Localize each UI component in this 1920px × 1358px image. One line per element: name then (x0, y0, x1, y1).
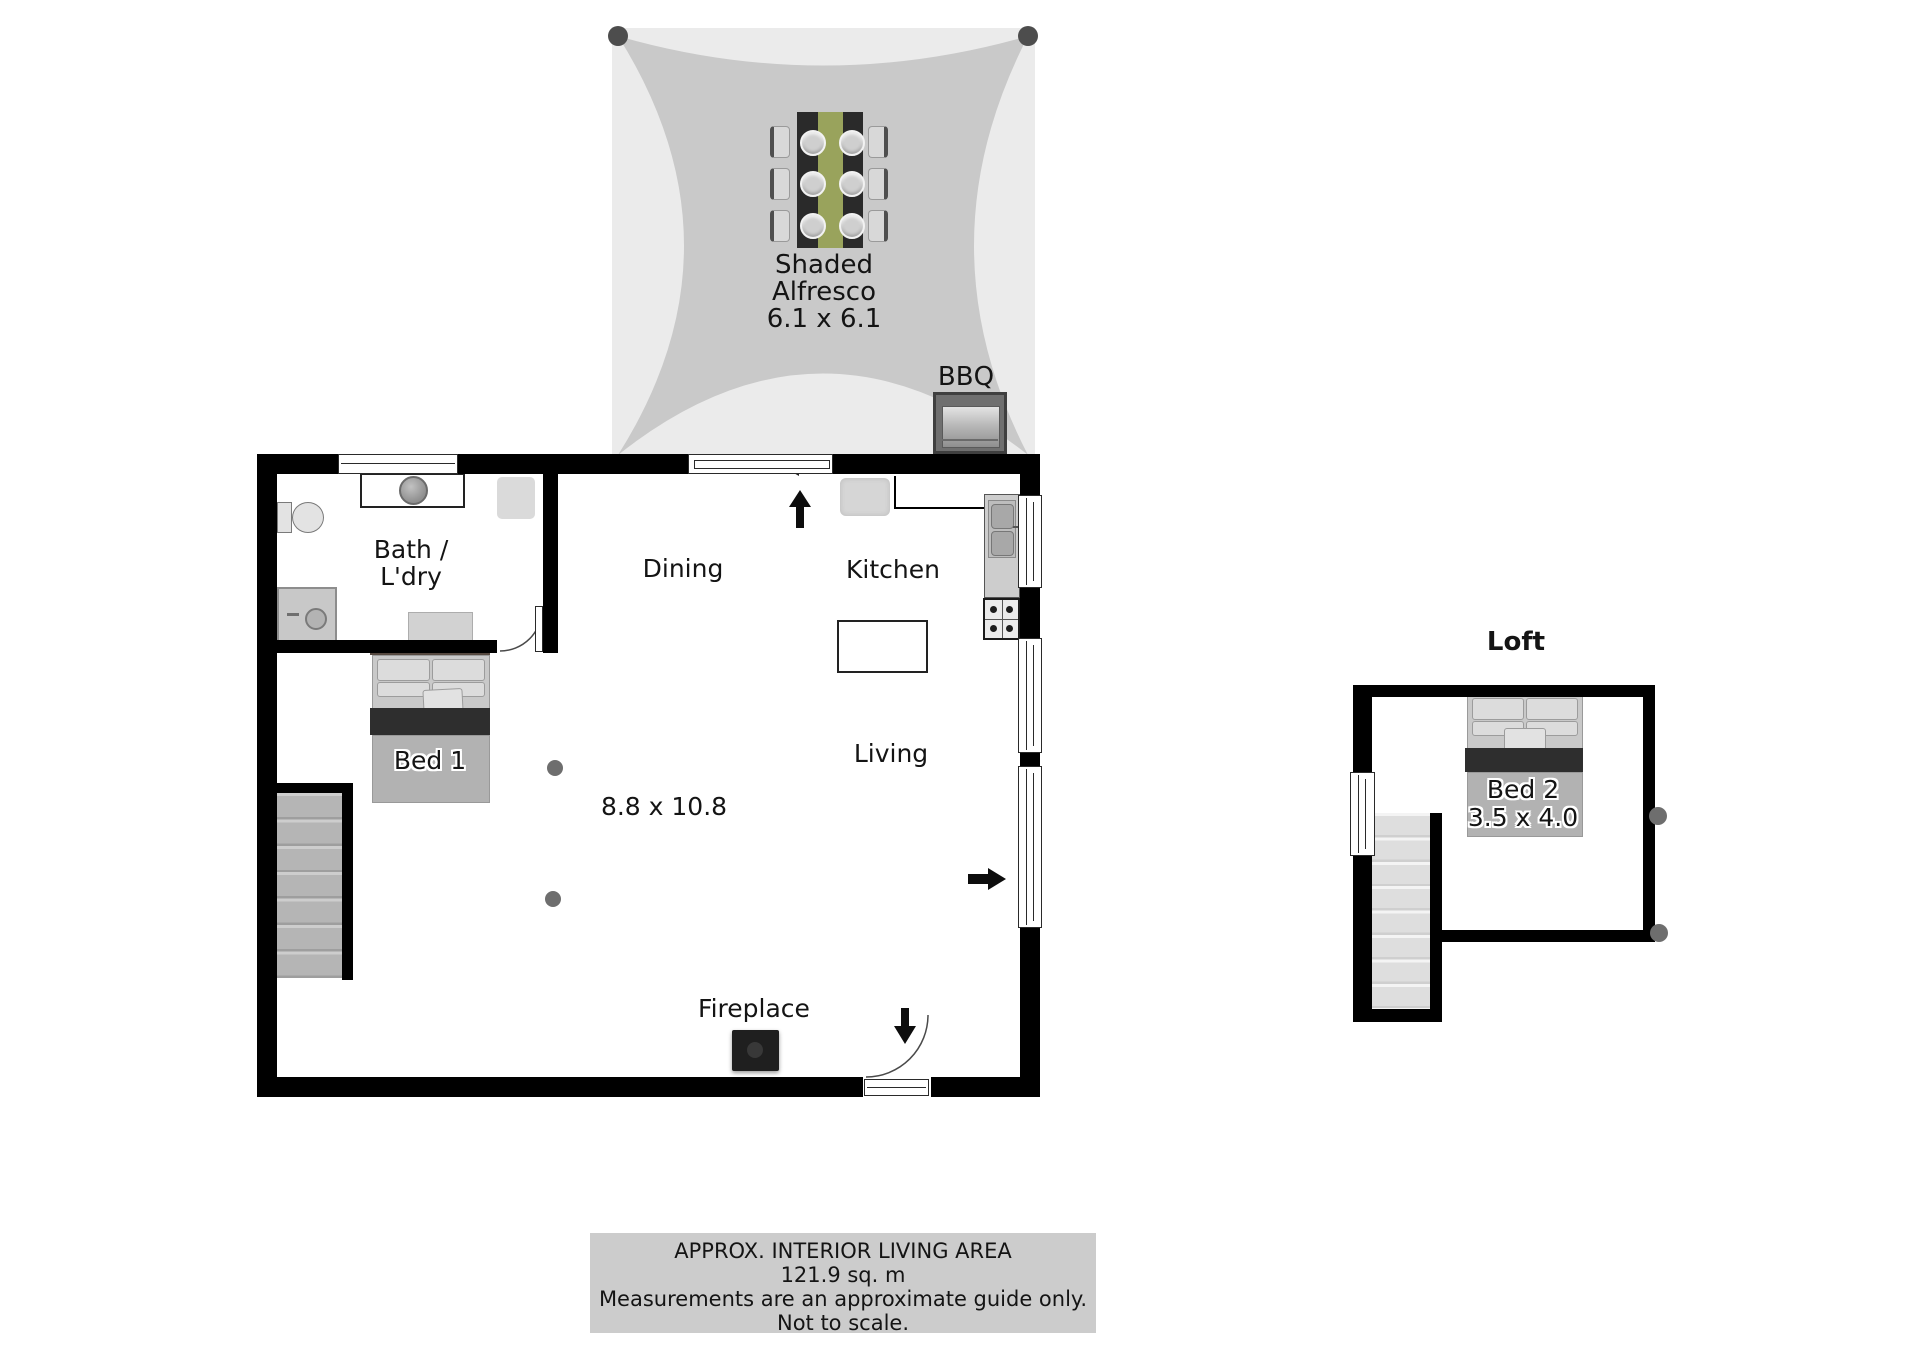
sail-anchor-dot (608, 26, 628, 46)
wall-top-2 (458, 454, 688, 474)
bath-door-leaf (535, 606, 543, 652)
sliding-door (688, 454, 833, 474)
wall-right-1 (1020, 454, 1040, 495)
disclaimer-line2: 121.9 sq. m (590, 1263, 1096, 1287)
bbq-label: BBQ (896, 364, 1036, 391)
sliding-door-panel (694, 460, 830, 469)
entry-door-leaf (864, 1079, 929, 1096)
living-label: Living (821, 740, 961, 767)
chair-icon (868, 168, 888, 200)
burner-icon (990, 606, 997, 613)
fridge-icon (840, 478, 890, 516)
shower-icon (277, 587, 337, 643)
bed2-label: Bed 2 (1453, 776, 1593, 803)
bed-mattress (1467, 694, 1583, 750)
wall-right-2 (1020, 588, 1040, 638)
plate-icon (800, 130, 826, 156)
post-dot (545, 891, 561, 907)
wall-right-3 (1020, 928, 1040, 1097)
sink-bowl (991, 531, 1014, 556)
kitchen-window (1018, 495, 1042, 588)
alfresco-label-line1: Shaded (724, 252, 924, 279)
chair-icon (770, 126, 790, 158)
loft-post-dot (1649, 807, 1667, 825)
living-dimensions-label: 8.8 x 10.8 (594, 793, 734, 820)
bath-laundry-label: Bath / L'dry (341, 536, 481, 590)
bath-label-line1: Bath / (341, 536, 481, 563)
kitchen-counter-line-h (894, 507, 986, 509)
bed-mattress (372, 655, 490, 710)
alfresco-label-line2: Alfresco (724, 279, 924, 306)
bbq-icon (933, 392, 1007, 454)
bath-cabinet-icon (497, 477, 535, 519)
dining-label: Dining (613, 555, 753, 582)
kitchen-label: Kitchen (823, 556, 963, 583)
toilet-tank-icon (277, 502, 292, 533)
plan-graphics-layer (0, 0, 1920, 1358)
wall-bath-right (543, 474, 558, 653)
plate-icon (800, 171, 826, 197)
disclaimer-line3: Measurements are an approximate guide on… (590, 1287, 1096, 1311)
loft-window (1350, 772, 1375, 856)
loft-stairs (1372, 813, 1430, 1009)
shower-tap-icon (287, 613, 299, 616)
loft-post-dot (1650, 924, 1668, 942)
plate-icon (839, 213, 865, 239)
chair-icon (770, 168, 790, 200)
kitchen-counter-line-v (894, 476, 896, 509)
post-dot (547, 760, 563, 776)
fireplace-label: Fireplace (684, 995, 824, 1022)
loft-wall-top (1353, 685, 1655, 697)
burner-icon (990, 625, 997, 632)
loft-wall-bottom (1435, 930, 1655, 942)
bed2-dimensions-label: 3.5 x 4.0 (1453, 804, 1593, 831)
wall-left (257, 454, 277, 1097)
disclaimer-line4: Not to scale. (590, 1311, 1096, 1335)
disclaimer-line1: APPROX. INTERIOR LIVING AREA (590, 1239, 1096, 1263)
sink-bowl (991, 504, 1014, 529)
floor-plan-page: Shaded Alfresco 6.1 x 6.1 BBQ Bath / L'd… (0, 0, 1920, 1358)
alfresco-dimensions: 6.1 x 6.1 (724, 306, 924, 333)
burner-icon (1006, 625, 1013, 632)
plate-icon (839, 130, 865, 156)
plate-icon (839, 171, 865, 197)
entry-door-arc (866, 1015, 928, 1077)
loft-stairs-side (1430, 813, 1442, 1022)
pillow-icon (377, 659, 430, 681)
bbq-hood-line (942, 439, 998, 441)
bath-label-line2: L'dry (341, 563, 481, 590)
wall-top-3 (833, 454, 1040, 474)
loft-stairs-bottom (1353, 1009, 1442, 1022)
chair-icon (868, 210, 888, 242)
stove-icon (983, 598, 1020, 640)
shower-drain-icon (305, 608, 327, 630)
burner-icon (1006, 606, 1013, 613)
wall-stairs-top (272, 783, 353, 793)
outdoor-dining-table-icon (797, 112, 863, 248)
pillow-icon (1472, 698, 1524, 720)
loft-title: Loft (1446, 629, 1586, 656)
fireplace-icon (732, 1030, 779, 1071)
alfresco-label: Shaded Alfresco 6.1 x 6.1 (724, 252, 924, 333)
arrow-down-icon (894, 1008, 916, 1044)
living-window-2 (1018, 766, 1042, 928)
bed-blanket-fold (370, 708, 490, 735)
bath-window (338, 454, 458, 474)
disclaimer-box: APPROX. INTERIOR LIVING AREA 121.9 sq. m… (590, 1233, 1096, 1333)
pillow-icon (1526, 698, 1578, 720)
plate-icon (800, 213, 826, 239)
chair-icon (868, 126, 888, 158)
stairs-main (275, 793, 342, 978)
chair-icon (770, 210, 790, 242)
bed1-icon (370, 648, 490, 803)
arrow-up-icon (789, 490, 811, 528)
living-window-1 (1018, 638, 1042, 753)
fireplace-ring (747, 1042, 763, 1058)
wall-bath-bottom (257, 640, 497, 653)
wall-stairs-side (342, 783, 353, 980)
sink-icon (988, 500, 1016, 558)
basin-icon (399, 476, 428, 505)
arrow-right-icon (968, 868, 1006, 890)
island-bench (837, 620, 928, 673)
bed1-label: Bed 1 (360, 747, 500, 774)
toilet-bowl-icon (292, 502, 324, 533)
pillow-icon (432, 659, 485, 681)
stove-grid-h (985, 619, 1018, 620)
bbq-hood (942, 406, 1000, 448)
wall-right-mullion (1020, 753, 1040, 766)
wall-bottom-1 (257, 1077, 863, 1097)
sail-anchor-dot (1018, 26, 1038, 46)
bed-blanket-fold (1465, 748, 1583, 772)
